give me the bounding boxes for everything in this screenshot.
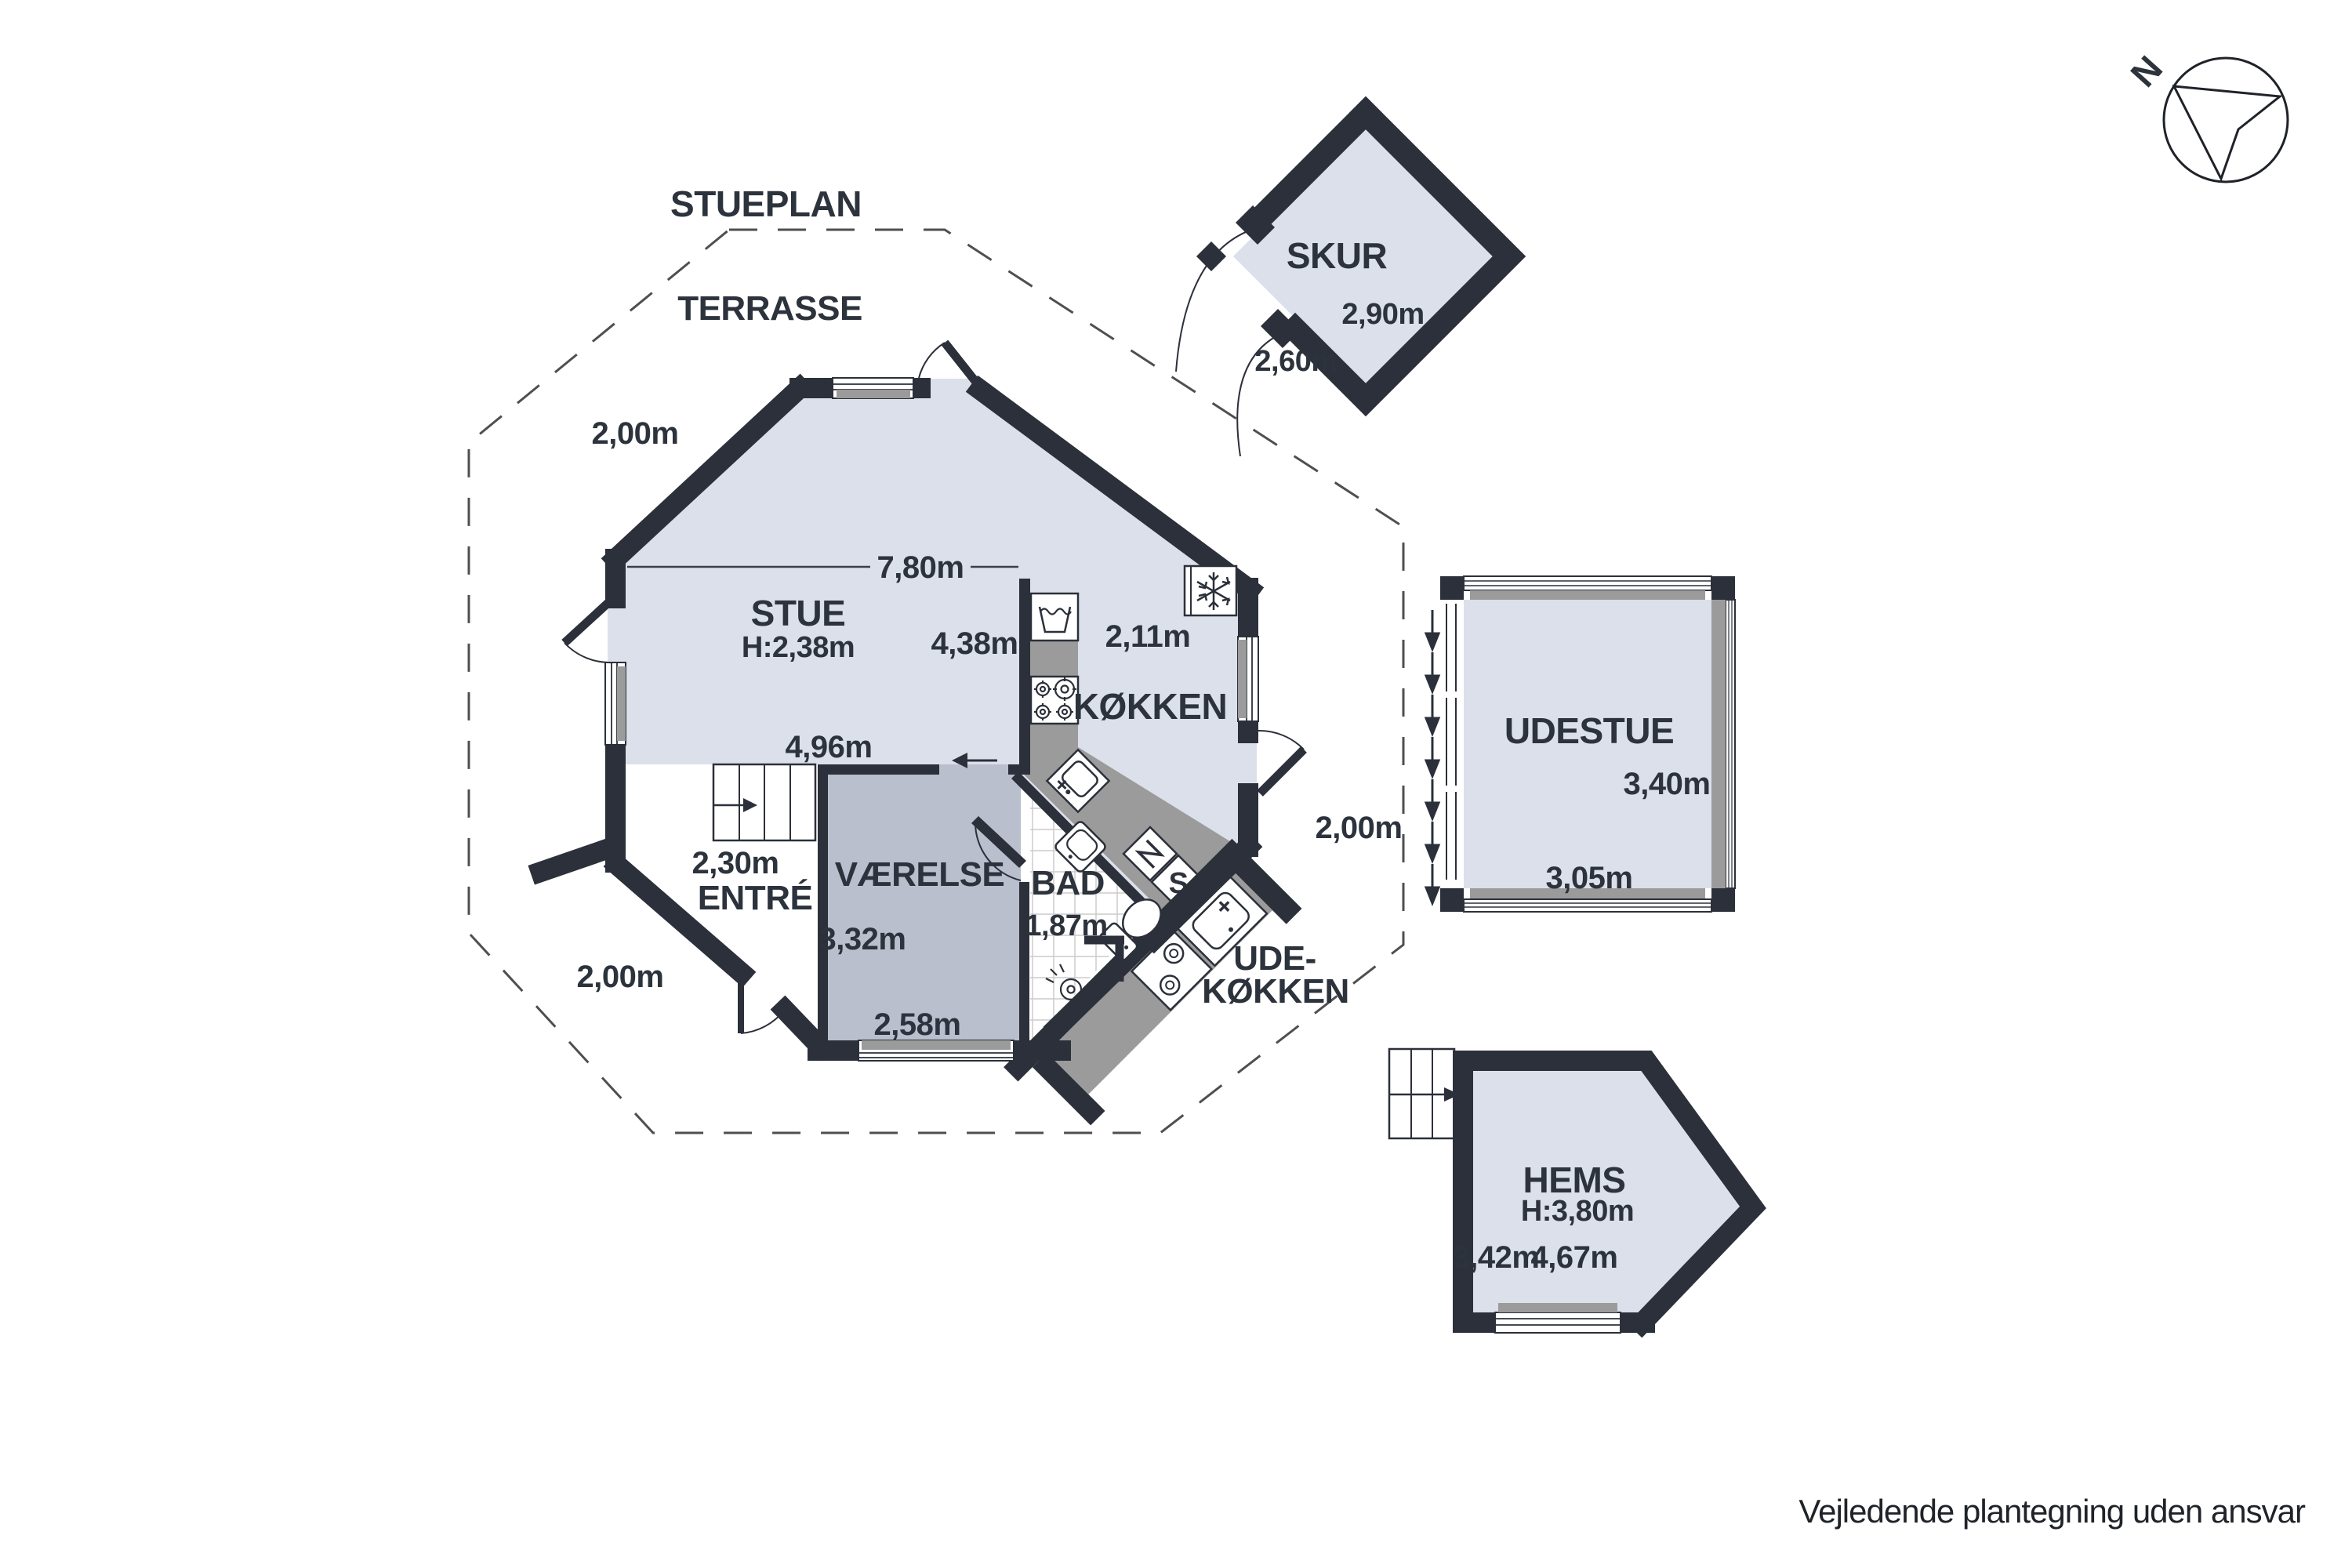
entre-dim: 2,30m bbox=[692, 846, 779, 880]
stue-dim-partial: 4,96m bbox=[786, 730, 873, 764]
hems-dim-width: 3,42m bbox=[1453, 1240, 1540, 1275]
udestue-label: UDESTUE bbox=[1504, 710, 1674, 751]
bad-label: BAD bbox=[1031, 864, 1105, 902]
stue-label: STUE bbox=[751, 593, 846, 633]
terrace-dim-sw: 2,00m bbox=[577, 960, 664, 994]
kitchen-appliances bbox=[1030, 593, 1078, 749]
koekken-dim-length: 4,38m bbox=[931, 626, 1018, 661]
terrasse-label: TERRASSE bbox=[677, 289, 862, 328]
stairs-entre bbox=[713, 764, 815, 840]
compass-needle bbox=[2174, 86, 2280, 179]
page-title: STUEPLAN bbox=[670, 183, 862, 224]
window-right bbox=[1238, 637, 1258, 721]
window-hems bbox=[1495, 1303, 1621, 1333]
floorplan-canvas: S bbox=[0, 0, 2352, 1568]
compass: N bbox=[2122, 48, 2288, 182]
koekken-dim-width: 2,11m bbox=[1105, 619, 1191, 654]
compass-north-label: N bbox=[2122, 48, 2170, 94]
washing-machine-icon bbox=[1031, 593, 1078, 641]
door-right bbox=[1258, 731, 1304, 793]
window-top bbox=[833, 378, 913, 398]
terrace-dim-nw: 2,00m bbox=[592, 416, 679, 451]
door-left bbox=[564, 600, 613, 662]
koekken-label: KØKKEN bbox=[1073, 686, 1227, 727]
udekoekken-label-2: KØKKEN bbox=[1202, 972, 1349, 1011]
stue-height: H:2,38m bbox=[742, 631, 855, 664]
stove-icon bbox=[1031, 677, 1078, 724]
udestue-opening-arrows bbox=[1426, 610, 1439, 903]
hems-height: H:3,80m bbox=[1521, 1195, 1634, 1228]
floorplan-drawing: S bbox=[0, 0, 2352, 1568]
udestue-track bbox=[1446, 604, 1456, 886]
skur-label: SKUR bbox=[1287, 235, 1388, 276]
hems-dim-length: 4,67m bbox=[1531, 1240, 1618, 1275]
vaerelse-dim-length: 3,32m bbox=[819, 922, 906, 956]
fridge-icon bbox=[1185, 566, 1236, 615]
vaerelse-label: VÆRELSE bbox=[835, 855, 1005, 894]
terrace-dim-e: 2,00m bbox=[1316, 811, 1403, 845]
vaerelse-dim-width: 2,58m bbox=[874, 1007, 961, 1042]
window-left bbox=[605, 662, 626, 745]
bad-dim: 1,87m bbox=[1025, 909, 1107, 942]
udestue-dim-width: 3,05m bbox=[1546, 861, 1633, 895]
skur-dim-length: 2,90m bbox=[1341, 298, 1424, 331]
entre-label: ENTRÉ bbox=[698, 878, 813, 917]
stairs-hems bbox=[1389, 1049, 1460, 1138]
stue-dim-width: 7,80m bbox=[877, 550, 964, 585]
floor-vaerelse bbox=[818, 764, 1021, 1043]
window-vaerelse bbox=[858, 1040, 1014, 1061]
skur-dim-width: 2,60m bbox=[1254, 345, 1337, 378]
udestue-dim-length: 3,40m bbox=[1624, 767, 1711, 801]
disclaimer-text: Vejledende plantegning uden ansvar bbox=[1798, 1493, 2306, 1530]
skur-building bbox=[1176, 113, 1509, 456]
